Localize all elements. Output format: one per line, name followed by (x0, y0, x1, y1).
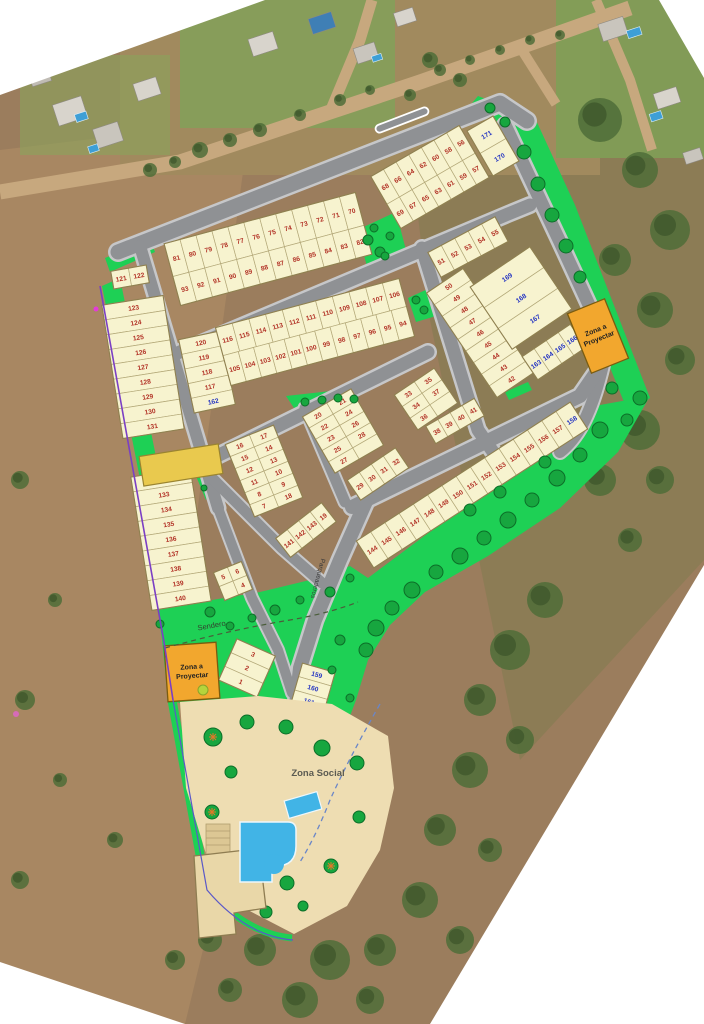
vegetation-icon (335, 95, 342, 102)
tree-icon (325, 587, 335, 597)
tree-icon (500, 512, 516, 528)
tree-icon (386, 232, 394, 240)
tree-icon (464, 504, 476, 516)
vegetation-icon (494, 634, 516, 656)
tree-icon (539, 456, 551, 468)
tree-icon (353, 811, 365, 823)
tree-icon (201, 485, 207, 491)
vegetation-icon (13, 473, 23, 483)
tree-icon (225, 766, 237, 778)
tree-icon (477, 531, 491, 545)
vegetation-icon (427, 817, 445, 835)
tree-icon (381, 252, 389, 260)
vegetation-icon (456, 756, 476, 776)
tree-icon (314, 740, 330, 756)
vegetation-icon (626, 156, 646, 176)
vegetation-icon (220, 980, 233, 993)
tree-icon (531, 177, 545, 191)
zona-social-label: Zona Social (291, 768, 344, 779)
vegetation-icon (286, 986, 306, 1006)
tree-icon (420, 306, 428, 314)
tree-icon (298, 901, 308, 911)
vegetation-icon (467, 687, 485, 705)
vegetation-icon (54, 774, 62, 782)
tree-icon (592, 422, 608, 438)
vegetation-icon (366, 86, 372, 92)
vegetation-icon (254, 124, 262, 132)
vegetation-icon (13, 873, 23, 883)
tree-icon (385, 601, 399, 615)
vegetation-icon (314, 944, 336, 966)
vegetation-icon (668, 348, 685, 365)
tree-icon (573, 448, 587, 462)
tree-icon (452, 548, 468, 564)
vegetation-icon (49, 594, 57, 602)
tree-icon (226, 622, 234, 630)
vegetation-icon (224, 134, 232, 142)
vegetation-icon (435, 65, 442, 72)
tree-icon (574, 271, 586, 283)
vegetation-icon (496, 46, 502, 52)
vegetation-icon (602, 247, 620, 265)
tree-icon (280, 876, 294, 890)
vegetation-icon (582, 102, 606, 126)
vegetation-icon (454, 74, 462, 82)
tree-icon (545, 208, 559, 222)
tree-icon (494, 486, 506, 498)
tree-icon (517, 145, 531, 159)
tree-icon (621, 414, 633, 426)
vegetation-icon (466, 56, 472, 62)
tree-icon (525, 493, 539, 507)
tree-icon (368, 620, 384, 636)
tree-icon (359, 643, 373, 657)
tree-icon (205, 607, 215, 617)
tree-icon (633, 391, 647, 405)
vegetation-icon (620, 530, 633, 543)
vegetation-icon (367, 937, 385, 955)
tree-icon (296, 596, 304, 604)
tree-icon (412, 296, 420, 304)
tree-icon (404, 582, 420, 598)
swimming-pool-round (264, 854, 284, 874)
tree-icon (559, 239, 573, 253)
tree-icon (279, 720, 293, 734)
pool-steps (206, 824, 230, 854)
vegetation-icon (405, 90, 412, 97)
site-plan-screenshot: 8180797877767574737271709392919089888786… (0, 0, 704, 1024)
tree-icon (335, 635, 345, 645)
tree-icon (485, 103, 495, 113)
vegetation-icon (654, 214, 676, 236)
vegetation-icon (449, 929, 464, 944)
vegetation-icon (109, 834, 118, 843)
tree-icon (240, 715, 254, 729)
tree-icon (334, 394, 342, 402)
tree-icon (370, 224, 378, 232)
vegetation-icon (480, 840, 493, 853)
vegetation-icon (424, 54, 433, 63)
palm-tree-icon (327, 862, 335, 870)
tree-icon (350, 395, 358, 403)
vegetation-icon (359, 989, 374, 1004)
survey-marker (94, 307, 99, 312)
tree-icon (429, 565, 443, 579)
vegetation-icon (295, 110, 302, 117)
survey-marker (13, 711, 19, 717)
vegetation-icon (194, 144, 203, 153)
vegetation-icon (144, 164, 152, 172)
tree-icon (346, 574, 354, 582)
tree-icon (248, 614, 256, 622)
tree-icon (318, 396, 326, 404)
tree-icon (606, 382, 618, 394)
palm-tree-icon (209, 733, 217, 741)
tree-icon (549, 470, 565, 486)
vegetation-icon (170, 157, 177, 164)
tree-icon (328, 666, 336, 674)
palm-tree-icon (208, 808, 216, 816)
round-lawn-feature (198, 685, 208, 695)
tree-icon (350, 756, 364, 770)
vegetation-icon (17, 692, 28, 703)
tree-icon (500, 117, 510, 127)
tree-icon (270, 605, 280, 615)
tree-icon (363, 235, 373, 245)
site-plan-svg: 8180797877767574737271709392919089888786… (0, 0, 704, 1024)
tree-icon (301, 398, 309, 406)
vegetation-icon (509, 729, 524, 744)
vegetation-icon (247, 937, 265, 955)
vegetation-icon (556, 31, 562, 37)
tree-icon (346, 694, 354, 702)
vegetation-icon (526, 36, 532, 42)
vegetation-icon (641, 296, 661, 316)
vegetation-icon (649, 469, 664, 484)
vegetation-icon (167, 952, 178, 963)
vegetation-icon (406, 886, 426, 906)
vegetation-icon (531, 586, 551, 606)
